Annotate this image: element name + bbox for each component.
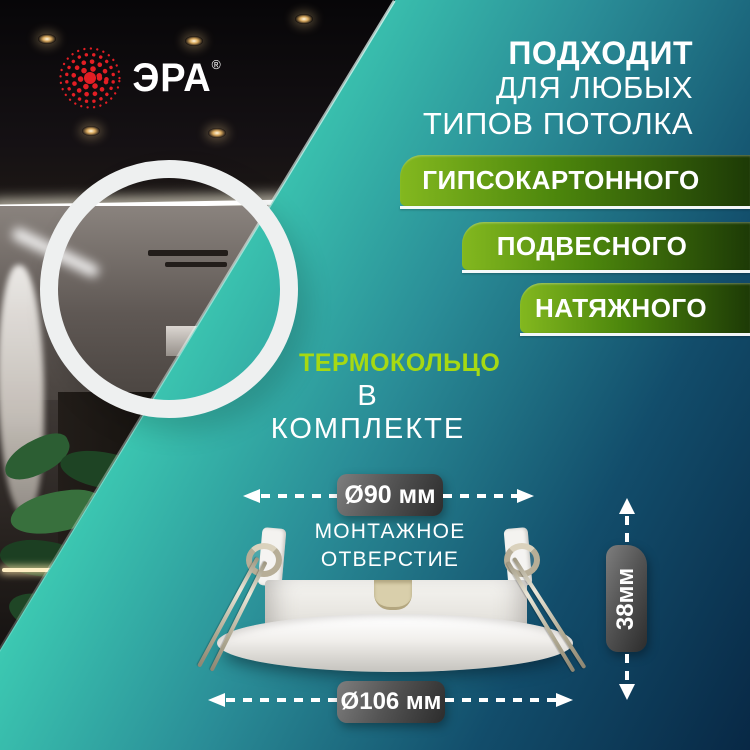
headline-line3: ТИПОВ ПОТОЛКА <box>423 106 693 142</box>
dimension-dash-line <box>625 516 629 545</box>
dimension-dash-line <box>226 698 337 702</box>
banner-label: ПОДВЕСНОГО <box>497 231 688 262</box>
hole-caption: МОНТАЖНОЕ ОТВЕРСТИЕ <box>290 518 490 574</box>
arrowhead-left-icon <box>243 489 260 503</box>
arrowhead-down-icon <box>619 684 635 700</box>
dimension-dash-line <box>261 494 337 498</box>
hole-caption-line2: ОТВЕРСТИЕ <box>290 546 490 574</box>
headline: ПОДХОДИТ ДЛЯ ЛЮБЫХ ТИПОВ ПОТОЛКА <box>423 36 693 142</box>
spotlight-glow <box>38 34 56 44</box>
era-starburst-icon <box>58 46 122 110</box>
hole-diameter-value: Ø90 мм <box>344 481 435 510</box>
banner-suspended-ceiling: ПОДВЕСНОГО <box>462 222 750 270</box>
arrowhead-right-icon <box>556 693 573 707</box>
banner-underline <box>520 333 750 336</box>
spotlight-glow <box>185 36 203 46</box>
banner-gypsum-ceiling: ГИПСОКАРТОННОГО <box>400 155 750 206</box>
banner-underline <box>400 206 750 209</box>
banner-label: НАТЯЖНОГО <box>535 293 707 324</box>
spotlight-glow <box>295 14 313 24</box>
spotlight-glow <box>82 126 100 136</box>
era-logo: ЭРА® <box>58 46 223 110</box>
height-value: 38мм <box>613 567 641 629</box>
terminal-box <box>374 580 412 610</box>
registered-mark: ® <box>212 57 221 72</box>
banner-label: ГИПСОКАРТОННОГО <box>422 165 699 196</box>
thermo-ring-graphic <box>40 160 298 418</box>
outer-diameter-badge: Ø106 мм <box>337 681 445 723</box>
arrowhead-right-icon <box>517 489 534 503</box>
height-badge: 38мм <box>606 545 647 652</box>
brand-name-text: ЭРА <box>132 56 211 100</box>
hole-diameter-badge: Ø90 мм <box>337 474 443 516</box>
feature-included: В КОМПЛЕКТЕ <box>268 380 468 446</box>
headline-line2: ДЛЯ ЛЮБЫХ <box>423 70 693 106</box>
dimension-dash-line <box>625 654 629 683</box>
plant-leaf <box>48 544 152 611</box>
dimension-dash-line <box>445 698 556 702</box>
dimension-dash-line <box>443 494 517 498</box>
banner-underline <box>462 270 750 273</box>
product-infographic: ЭРА® ПОДХОДИТ ДЛЯ ЛЮБЫХ ТИПОВ ПОТОЛКА ГИ… <box>0 0 750 750</box>
glass-reflection <box>214 520 216 645</box>
spotlight-glow <box>208 128 226 138</box>
feature-thermo-ring: ТЕРМОКОЛЬЦО <box>299 349 499 378</box>
under-cabinet-light <box>2 568 60 572</box>
outer-diameter-value: Ø106 мм <box>341 688 442 716</box>
arrowhead-left-icon <box>208 693 225 707</box>
downlight-trim <box>217 614 573 672</box>
banner-stretch-ceiling: НАТЯЖНОГО <box>520 283 750 333</box>
hole-caption-line1: МОНТАЖНОЕ <box>290 518 490 546</box>
headline-line1: ПОДХОДИТ <box>423 36 693 70</box>
arrowhead-up-icon <box>619 498 635 514</box>
brand-name: ЭРА® <box>132 58 220 98</box>
